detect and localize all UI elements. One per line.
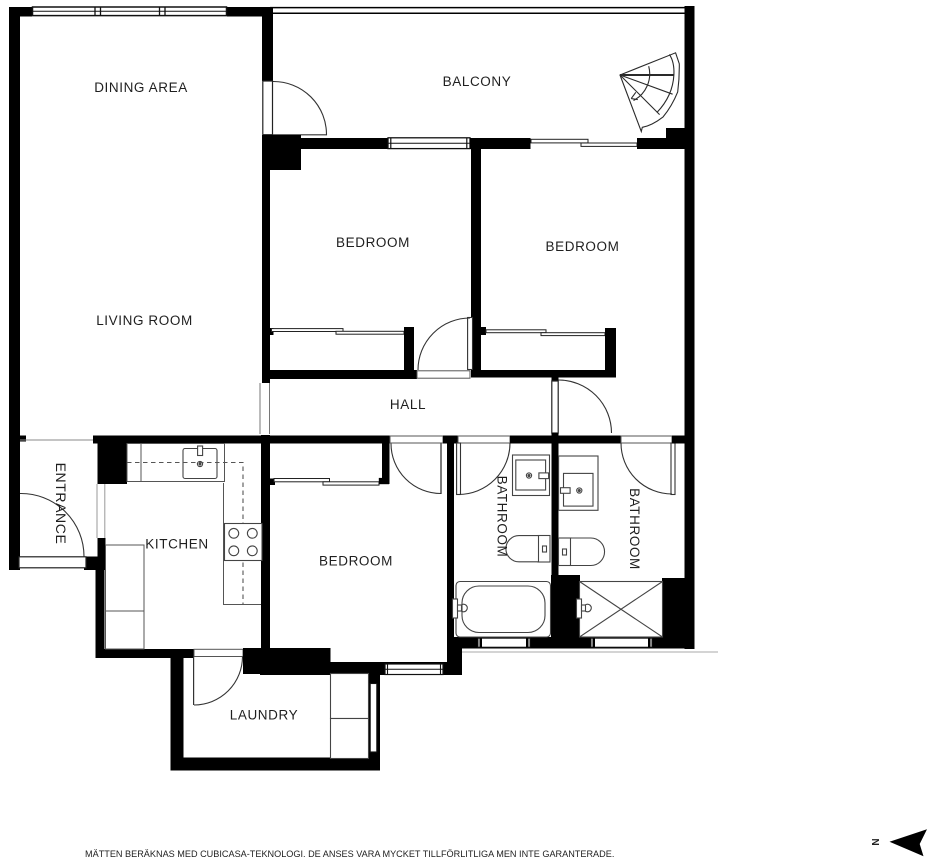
svg-text:BEDROOM: BEDROOM: [319, 554, 393, 569]
svg-text:LIVING ROOM: LIVING ROOM: [96, 313, 193, 328]
svg-text:BATHROOM: BATHROOM: [495, 476, 510, 558]
svg-text:N: N: [871, 838, 882, 845]
svg-text:KITCHEN: KITCHEN: [145, 537, 208, 552]
svg-text:HALL: HALL: [390, 397, 426, 412]
svg-text:ENTRANCE: ENTRANCE: [53, 463, 69, 545]
svg-text:MÄTTEN BERÄKNAS MED CUBICASA-T: MÄTTEN BERÄKNAS MED CUBICASA-TEKNOLOGI. …: [85, 849, 614, 859]
svg-text:BEDROOM: BEDROOM: [546, 239, 620, 254]
svg-text:LAUNDRY: LAUNDRY: [230, 708, 298, 723]
svg-text:BALCONY: BALCONY: [443, 74, 512, 89]
svg-text:DINING AREA: DINING AREA: [94, 80, 188, 95]
svg-text:BATHROOM: BATHROOM: [627, 488, 642, 570]
svg-text:BEDROOM: BEDROOM: [336, 235, 410, 250]
